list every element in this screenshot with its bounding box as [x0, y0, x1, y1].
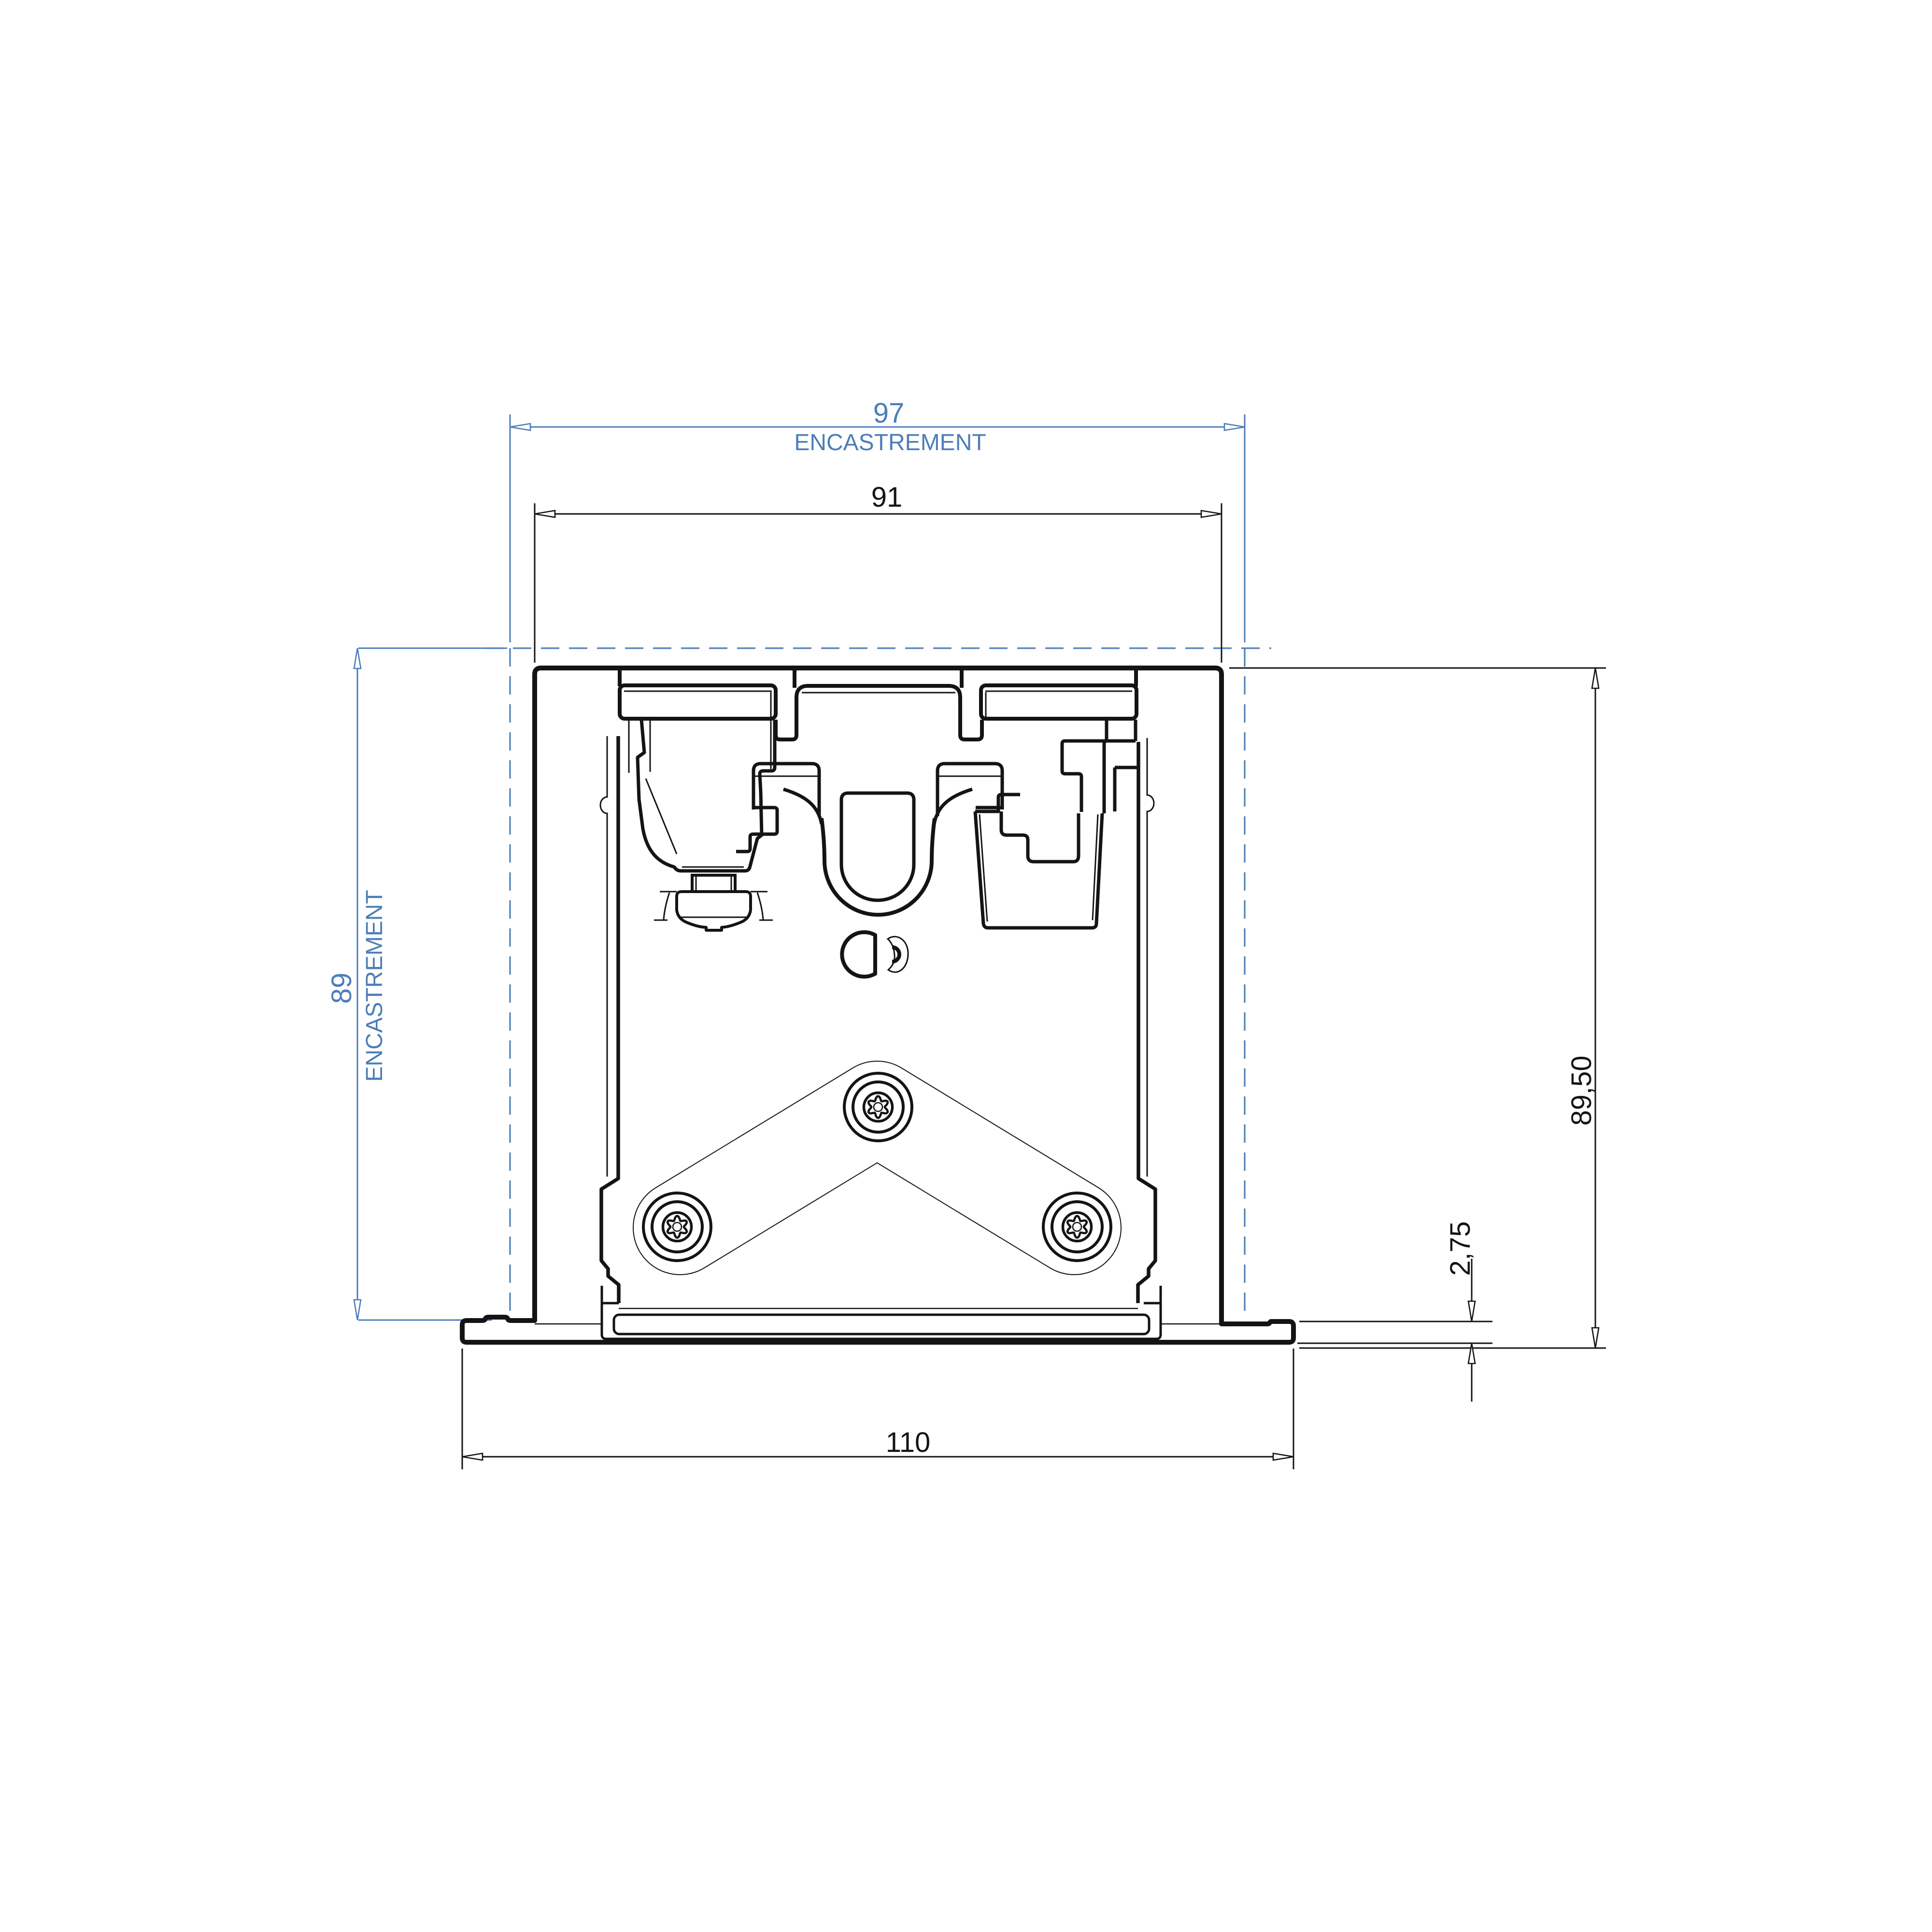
svg-text:97: 97: [873, 398, 905, 429]
svg-text:2,75: 2,75: [1445, 1222, 1476, 1276]
svg-text:89: 89: [326, 973, 357, 1004]
svg-text:110: 110: [886, 1427, 930, 1458]
svg-text:91: 91: [871, 482, 903, 513]
svg-text:ENCASTREMENT: ENCASTREMENT: [362, 890, 387, 1081]
svg-text:ENCASTREMENT: ENCASTREMENT: [794, 430, 986, 455]
svg-text:89,50: 89,50: [1566, 1055, 1597, 1125]
